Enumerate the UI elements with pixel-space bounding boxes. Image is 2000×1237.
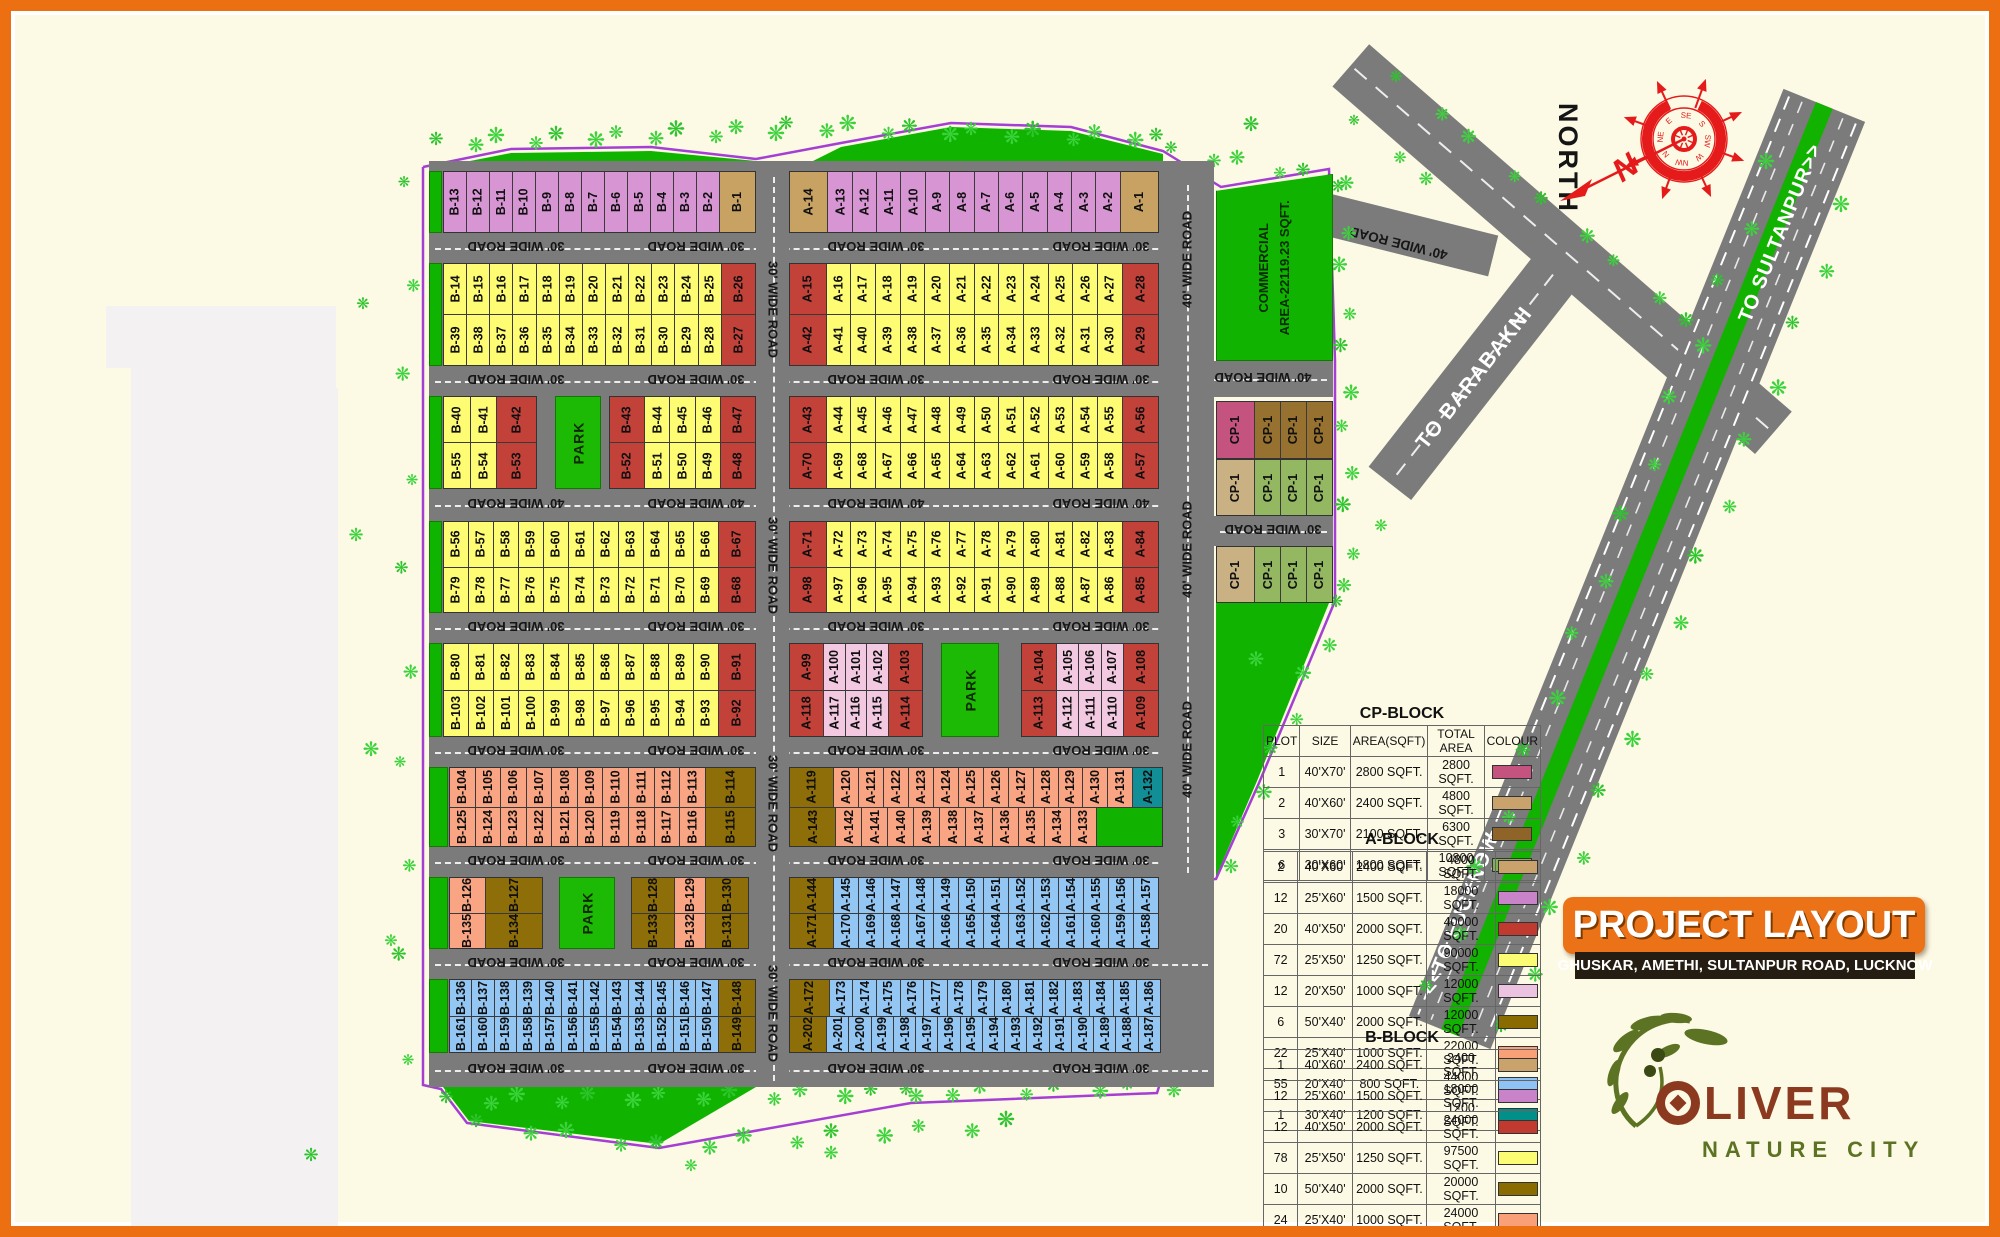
plot-A-127[interactable]: A-127 — [1009, 768, 1034, 807]
plot-B-104[interactable]: B-104 — [450, 768, 476, 807]
plot-A-7[interactable]: A-7 — [975, 172, 999, 232]
plot-A-168[interactable]: A-168 — [884, 914, 909, 949]
plot-CP-1[interactable]: CP-1 — [1281, 460, 1307, 515]
plot-A-37[interactable]: A-37 — [925, 315, 950, 365]
plot-CP-1[interactable]: CP-1 — [1307, 460, 1332, 515]
plot-B-2[interactable]: B-2 — [697, 172, 720, 232]
plot-A-109[interactable]: A-109 — [1124, 691, 1158, 737]
plot-A-72[interactable]: A-72 — [827, 522, 852, 567]
plot-A-120[interactable]: A-120 — [834, 768, 859, 807]
plot-A-181[interactable]: A-181 — [1019, 980, 1043, 1016]
plot-A-122[interactable]: A-122 — [884, 768, 909, 807]
plot-A-15[interactable]: A-15 — [790, 264, 827, 314]
plot-B-138[interactable]: B-138 — [495, 980, 517, 1016]
plot-B-159[interactable]: B-159 — [495, 1017, 517, 1053]
plot-B-7[interactable]: B-7 — [582, 172, 605, 232]
plot-A-76[interactable]: A-76 — [925, 522, 950, 567]
plot-B-70[interactable]: B-70 — [669, 568, 694, 613]
plot-B-77[interactable]: B-77 — [494, 568, 519, 613]
plot-B-41[interactable]: B-41 — [471, 397, 498, 442]
plot-A-62[interactable]: A-62 — [999, 443, 1024, 488]
plot-A-146[interactable]: A-146 — [859, 878, 884, 913]
plot-A-142[interactable]: A-142 — [836, 808, 862, 847]
plot-A-124[interactable]: A-124 — [934, 768, 959, 807]
plot-A-152[interactable]: A-152 — [1009, 878, 1034, 913]
plot-B-63[interactable]: B-63 — [619, 522, 644, 567]
plot-B-50[interactable]: B-50 — [670, 443, 695, 488]
plot-A-161[interactable]: A-161 — [1059, 914, 1084, 949]
plot-B-57[interactable]: B-57 — [469, 522, 494, 567]
plot-B-18[interactable]: B-18 — [537, 264, 560, 314]
plot-B-118[interactable]: B-118 — [629, 808, 655, 847]
plot-B-56[interactable]: B-56 — [444, 522, 469, 567]
plot-B-112[interactable]: B-112 — [655, 768, 681, 807]
plot-A-36[interactable]: A-36 — [950, 315, 975, 365]
plot-B-119[interactable]: B-119 — [603, 808, 629, 847]
plot-A-164[interactable]: A-164 — [984, 914, 1009, 949]
plot-A-106[interactable]: A-106 — [1079, 644, 1101, 690]
plot-A-187[interactable]: A-187 — [1139, 1017, 1160, 1053]
plot-A-133[interactable]: A-133 — [1071, 808, 1097, 847]
plot-A-101[interactable]: A-101 — [846, 644, 868, 690]
plot-A-23[interactable]: A-23 — [999, 264, 1024, 314]
plot-A-77[interactable]: A-77 — [950, 522, 975, 567]
plot-B-15[interactable]: B-15 — [467, 264, 490, 314]
plot-A-53[interactable]: A-53 — [1049, 397, 1074, 442]
plot-A-89[interactable]: A-89 — [1024, 568, 1049, 613]
plot-A-179[interactable]: A-179 — [972, 980, 996, 1016]
plot-B-157[interactable]: B-157 — [540, 1017, 562, 1053]
plot-A-48[interactable]: A-48 — [925, 397, 950, 442]
plot-A-198[interactable]: A-198 — [894, 1017, 916, 1053]
plot-A-173[interactable]: A-173 — [830, 980, 854, 1016]
plot-B-101[interactable]: B-101 — [494, 691, 519, 737]
plot-A-117[interactable]: A-117 — [824, 691, 846, 737]
plot-A-148[interactable]: A-148 — [909, 878, 934, 913]
plot-A-132[interactable]: A-132 — [1133, 768, 1162, 807]
plot-B-75[interactable]: B-75 — [544, 568, 569, 613]
plot-A-27[interactable]: A-27 — [1098, 264, 1123, 314]
plot-B-46[interactable]: B-46 — [696, 397, 721, 442]
plot-B-158[interactable]: B-158 — [517, 1017, 539, 1053]
plot-B-38[interactable]: B-38 — [467, 315, 490, 365]
plot-A-126[interactable]: A-126 — [984, 768, 1009, 807]
plot-B-121[interactable]: B-121 — [552, 808, 578, 847]
plot-CP-1[interactable]: CP-1 — [1281, 547, 1307, 602]
plot-CP-1[interactable]: CP-1 — [1217, 460, 1255, 515]
plot-A-56[interactable]: A-56 — [1123, 397, 1159, 442]
plot-A-182[interactable]: A-182 — [1043, 980, 1067, 1016]
plot-A-177[interactable]: A-177 — [924, 980, 948, 1016]
plot-CP-1[interactable]: CP-1 — [1281, 402, 1307, 458]
plot-B-29[interactable]: B-29 — [675, 315, 698, 365]
plot-B-67[interactable]: B-67 — [719, 522, 755, 567]
plot-B-120[interactable]: B-120 — [578, 808, 604, 847]
plot-A-64[interactable]: A-64 — [950, 443, 975, 488]
plot-B-66[interactable]: B-66 — [694, 522, 719, 567]
plot-A-202[interactable]: A-202 — [790, 1017, 827, 1053]
plot-A-171[interactable]: A-171 — [790, 914, 834, 949]
plot-B-146[interactable]: B-146 — [674, 980, 696, 1016]
plot-A-169[interactable]: A-169 — [859, 914, 884, 949]
plot-A-60[interactable]: A-60 — [1049, 443, 1074, 488]
plot-A-92[interactable]: A-92 — [950, 568, 975, 613]
plot-B-33[interactable]: B-33 — [583, 315, 606, 365]
plot-B-134[interactable]: B-134 — [486, 914, 542, 949]
plot-A-118[interactable]: A-118 — [790, 691, 824, 737]
plot-B-93[interactable]: B-93 — [694, 691, 719, 737]
plot-A-11[interactable]: A-11 — [877, 172, 901, 232]
plot-B-113[interactable]: B-113 — [680, 768, 706, 807]
plot-A-112[interactable]: A-112 — [1057, 691, 1079, 737]
plot-B-122[interactable]: B-122 — [527, 808, 553, 847]
plot-B-36[interactable]: B-36 — [513, 315, 536, 365]
plot-B-6[interactable]: B-6 — [605, 172, 628, 232]
plot-A-32[interactable]: A-32 — [1049, 315, 1074, 365]
plot-B-142[interactable]: B-142 — [584, 980, 606, 1016]
plot-B-131[interactable]: B-131 — [706, 914, 748, 949]
plot-A-9[interactable]: A-9 — [926, 172, 950, 232]
plot-CP-1[interactable]: CP-1 — [1217, 402, 1255, 458]
plot-B-82[interactable]: B-82 — [494, 644, 519, 690]
plot-A-63[interactable]: A-63 — [975, 443, 1000, 488]
plot-A-87[interactable]: A-87 — [1073, 568, 1098, 613]
plot-A-154[interactable]: A-154 — [1059, 878, 1084, 913]
plot-A-174[interactable]: A-174 — [853, 980, 877, 1016]
plot-A-46[interactable]: A-46 — [876, 397, 901, 442]
plot-B-78[interactable]: B-78 — [469, 568, 494, 613]
plot-A-58[interactable]: A-58 — [1098, 443, 1123, 488]
plot-A-91[interactable]: A-91 — [975, 568, 1000, 613]
plot-A-113[interactable]: A-113 — [1022, 691, 1057, 737]
plot-A-150[interactable]: A-150 — [959, 878, 984, 913]
plot-A-116[interactable]: A-116 — [846, 691, 868, 737]
plot-A-90[interactable]: A-90 — [999, 568, 1024, 613]
plot-A-105[interactable]: A-105 — [1057, 644, 1079, 690]
plot-CP-1[interactable]: CP-1 — [1255, 547, 1281, 602]
plot-B-123[interactable]: B-123 — [501, 808, 527, 847]
plot-A-10[interactable]: A-10 — [901, 172, 925, 232]
plot-A-81[interactable]: A-81 — [1049, 522, 1074, 567]
plot-B-30[interactable]: B-30 — [652, 315, 675, 365]
plot-A-114[interactable]: A-114 — [889, 691, 922, 737]
plot-B-17[interactable]: B-17 — [513, 264, 536, 314]
plot-B-58[interactable]: B-58 — [494, 522, 519, 567]
plot-B-133[interactable]: B-133 — [632, 914, 675, 949]
plot-B-136[interactable]: B-136 — [450, 980, 472, 1016]
plot-A-50[interactable]: A-50 — [975, 397, 1000, 442]
plot-B-161[interactable]: B-161 — [450, 1017, 472, 1053]
plot-A-136[interactable]: A-136 — [993, 808, 1019, 847]
plot-B-83[interactable]: B-83 — [519, 644, 544, 690]
plot-B-14[interactable]: B-14 — [444, 264, 467, 314]
plot-B-125[interactable]: B-125 — [450, 808, 476, 847]
plot-B-102[interactable]: B-102 — [469, 691, 494, 737]
plot-A-98[interactable]: A-98 — [790, 568, 827, 613]
plot-A-26[interactable]: A-26 — [1073, 264, 1098, 314]
plot-A-21[interactable]: A-21 — [950, 264, 975, 314]
plot-A-128[interactable]: A-128 — [1034, 768, 1059, 807]
plot-B-13[interactable]: B-13 — [444, 172, 467, 232]
plot-A-95[interactable]: A-95 — [876, 568, 901, 613]
plot-B-153[interactable]: B-153 — [629, 1017, 651, 1053]
plot-B-81[interactable]: B-81 — [469, 644, 494, 690]
plot-A-151[interactable]: A-151 — [984, 878, 1009, 913]
plot-B-117[interactable]: B-117 — [655, 808, 681, 847]
plot-A-170[interactable]: A-170 — [834, 914, 859, 949]
plot-B-99[interactable]: B-99 — [544, 691, 569, 737]
plot-B-116[interactable]: B-116 — [680, 808, 706, 847]
plot-A-47[interactable]: A-47 — [901, 397, 926, 442]
plot-B-96[interactable]: B-96 — [619, 691, 644, 737]
plot-B-132[interactable]: B-132 — [675, 914, 706, 949]
plot-B-100[interactable]: B-100 — [519, 691, 544, 737]
plot-A-175[interactable]: A-175 — [877, 980, 901, 1016]
plot-CP-1[interactable]: CP-1 — [1217, 547, 1255, 602]
plot-A-196[interactable]: A-196 — [938, 1017, 960, 1053]
plot-B-148[interactable]: B-148 — [719, 980, 755, 1016]
plot-B-135[interactable]: B-135 — [450, 914, 486, 949]
plot-A-94[interactable]: A-94 — [901, 568, 926, 613]
plot-A-145[interactable]: A-145 — [834, 878, 859, 913]
plot-A-79[interactable]: A-79 — [999, 522, 1024, 567]
plot-B-27[interactable]: B-27 — [722, 315, 755, 365]
plot-A-28[interactable]: A-28 — [1123, 264, 1159, 314]
plot-B-76[interactable]: B-76 — [519, 568, 544, 613]
plot-B-5[interactable]: B-5 — [628, 172, 651, 232]
plot-A-138[interactable]: A-138 — [940, 808, 966, 847]
plot-CP-1[interactable]: CP-1 — [1255, 460, 1281, 515]
plot-B-110[interactable]: B-110 — [603, 768, 629, 807]
plot-B-85[interactable]: B-85 — [569, 644, 594, 690]
plot-A-31[interactable]: A-31 — [1073, 315, 1098, 365]
plot-A-197[interactable]: A-197 — [916, 1017, 938, 1053]
plot-B-106[interactable]: B-106 — [501, 768, 527, 807]
plot-A-49[interactable]: A-49 — [950, 397, 975, 442]
plot-A-29[interactable]: A-29 — [1123, 315, 1159, 365]
plot-A-143[interactable]: A-143 — [790, 808, 836, 847]
plot-B-24[interactable]: B-24 — [675, 264, 698, 314]
plot-A-97[interactable]: A-97 — [827, 568, 852, 613]
plot-B-65[interactable]: B-65 — [669, 522, 694, 567]
plot-A-84[interactable]: A-84 — [1123, 522, 1159, 567]
plot-A-125[interactable]: A-125 — [959, 768, 984, 807]
plot-B-137[interactable]: B-137 — [472, 980, 494, 1016]
plot-B-129[interactable]: B-129 — [675, 878, 706, 913]
plot-B-9[interactable]: B-9 — [536, 172, 559, 232]
plot-B-147[interactable]: B-147 — [696, 980, 718, 1016]
plot-A-158[interactable]: A-158 — [1134, 914, 1158, 949]
plot-A-140[interactable]: A-140 — [888, 808, 914, 847]
plot-B-26[interactable]: B-26 — [722, 264, 755, 314]
plot-A-144[interactable]: A-144 — [790, 878, 834, 913]
plot-A-44[interactable]: A-44 — [827, 397, 852, 442]
plot-A-30[interactable]: A-30 — [1098, 315, 1123, 365]
plot-A-131[interactable]: A-131 — [1108, 768, 1133, 807]
plot-A-19[interactable]: A-19 — [901, 264, 926, 314]
plot-B-92[interactable]: B-92 — [719, 691, 755, 737]
plot-B-103[interactable]: B-103 — [444, 691, 469, 737]
plot-B-139[interactable]: B-139 — [517, 980, 539, 1016]
plot-B-151[interactable]: B-151 — [674, 1017, 696, 1053]
plot-A-163[interactable]: A-163 — [1009, 914, 1034, 949]
plot-A-192[interactable]: A-192 — [1027, 1017, 1049, 1053]
plot-B-95[interactable]: B-95 — [644, 691, 669, 737]
plot-A-135[interactable]: A-135 — [1019, 808, 1045, 847]
plot-A-194[interactable]: A-194 — [983, 1017, 1005, 1053]
plot-B-28[interactable]: B-28 — [699, 315, 722, 365]
plot-B-89[interactable]: B-89 — [669, 644, 694, 690]
plot-B-143[interactable]: B-143 — [607, 980, 629, 1016]
plot-A-1[interactable]: A-1 — [1121, 172, 1158, 232]
plot-A-73[interactable]: A-73 — [851, 522, 876, 567]
plot-B-40[interactable]: B-40 — [444, 397, 471, 442]
plot-B-39[interactable]: B-39 — [444, 315, 467, 365]
plot-A-176[interactable]: A-176 — [901, 980, 925, 1016]
plot-A-166[interactable]: A-166 — [934, 914, 959, 949]
plot-A-75[interactable]: A-75 — [901, 522, 926, 567]
plot-B-16[interactable]: B-16 — [490, 264, 513, 314]
plot-B-87[interactable]: B-87 — [619, 644, 644, 690]
plot-B-154[interactable]: B-154 — [607, 1017, 629, 1053]
plot-B-74[interactable]: B-74 — [569, 568, 594, 613]
plot-A-43[interactable]: A-43 — [790, 397, 827, 442]
plot-B-8[interactable]: B-8 — [559, 172, 582, 232]
plot-A-96[interactable]: A-96 — [851, 568, 876, 613]
plot-A-20[interactable]: A-20 — [925, 264, 950, 314]
plot-A-201[interactable]: A-201 — [827, 1017, 849, 1053]
plot-B-84[interactable]: B-84 — [544, 644, 569, 690]
plot-B-60[interactable]: B-60 — [544, 522, 569, 567]
plot-B-20[interactable]: B-20 — [583, 264, 606, 314]
plot-A-180[interactable]: A-180 — [995, 980, 1019, 1016]
plot-A-39[interactable]: A-39 — [876, 315, 901, 365]
plot-A-178[interactable]: A-178 — [948, 980, 972, 1016]
plot-A-137[interactable]: A-137 — [966, 808, 992, 847]
commercial-area[interactable]: COMMERCIALAREA-22119.23 SQFT. — [1216, 174, 1333, 361]
plot-A-100[interactable]: A-100 — [824, 644, 846, 690]
plot-B-97[interactable]: B-97 — [594, 691, 619, 737]
plot-B-115[interactable]: B-115 — [706, 808, 755, 847]
plot-CP-1[interactable]: CP-1 — [1307, 547, 1332, 602]
plot-A-71[interactable]: A-71 — [790, 522, 827, 567]
plot-A-17[interactable]: A-17 — [851, 264, 876, 314]
plot-A-34[interactable]: A-34 — [999, 315, 1024, 365]
plot-A-13[interactable]: A-13 — [828, 172, 852, 232]
plot-B-55[interactable]: B-55 — [444, 443, 471, 488]
plot-A-88[interactable]: A-88 — [1049, 568, 1074, 613]
plot-A-45[interactable]: A-45 — [851, 397, 876, 442]
plot-B-68[interactable]: B-68 — [719, 568, 755, 613]
plot-B-150[interactable]: B-150 — [696, 1017, 718, 1053]
plot-CP-1[interactable]: CP-1 — [1255, 402, 1281, 458]
plot-B-111[interactable]: B-111 — [629, 768, 655, 807]
plot-B-140[interactable]: B-140 — [540, 980, 562, 1016]
plot-B-109[interactable]: B-109 — [578, 768, 604, 807]
plot-A-167[interactable]: A-167 — [909, 914, 934, 949]
plot-A-42[interactable]: A-42 — [790, 315, 827, 365]
plot-B-45[interactable]: B-45 — [670, 397, 695, 442]
plot-A-4[interactable]: A-4 — [1048, 172, 1072, 232]
plot-A-33[interactable]: A-33 — [1024, 315, 1049, 365]
plot-A-157[interactable]: A-157 — [1134, 878, 1158, 913]
plot-A-111[interactable]: A-111 — [1079, 691, 1101, 737]
plot-B-43[interactable]: B-43 — [610, 397, 645, 442]
plot-A-54[interactable]: A-54 — [1073, 397, 1098, 442]
plot-A-156[interactable]: A-156 — [1109, 878, 1134, 913]
plot-A-12[interactable]: A-12 — [853, 172, 877, 232]
plot-A-199[interactable]: A-199 — [872, 1017, 894, 1053]
plot-B-69[interactable]: B-69 — [694, 568, 719, 613]
plot-A-24[interactable]: A-24 — [1024, 264, 1049, 314]
plot-B-12[interactable]: B-12 — [467, 172, 490, 232]
plot-B-108[interactable]: B-108 — [552, 768, 578, 807]
plot-A-200[interactable]: A-200 — [849, 1017, 871, 1053]
plot-B-160[interactable]: B-160 — [472, 1017, 494, 1053]
plot-A-74[interactable]: A-74 — [876, 522, 901, 567]
plot-A-108[interactable]: A-108 — [1124, 644, 1158, 690]
plot-A-18[interactable]: A-18 — [876, 264, 901, 314]
plot-A-190[interactable]: A-190 — [1072, 1017, 1094, 1053]
plot-A-104[interactable]: A-104 — [1022, 644, 1057, 690]
plot-CP-1[interactable]: CP-1 — [1307, 402, 1332, 458]
plot-A-41[interactable]: A-41 — [827, 315, 852, 365]
plot-A-78[interactable]: A-78 — [975, 522, 1000, 567]
plot-B-35[interactable]: B-35 — [537, 315, 560, 365]
plot-A-67[interactable]: A-67 — [876, 443, 901, 488]
plot-A-22[interactable]: A-22 — [975, 264, 1000, 314]
plot-B-34[interactable]: B-34 — [560, 315, 583, 365]
plot-B-73[interactable]: B-73 — [594, 568, 619, 613]
plot-A-185[interactable]: A-185 — [1114, 980, 1138, 1016]
plot-A-195[interactable]: A-195 — [961, 1017, 983, 1053]
plot-B-80[interactable]: B-80 — [444, 644, 469, 690]
plot-A-162[interactable]: A-162 — [1034, 914, 1059, 949]
plot-A-3[interactable]: A-3 — [1072, 172, 1096, 232]
plot-A-57[interactable]: A-57 — [1123, 443, 1159, 488]
plot-A-103[interactable]: A-103 — [889, 644, 922, 690]
plot-A-193[interactable]: A-193 — [1005, 1017, 1027, 1053]
plot-A-51[interactable]: A-51 — [999, 397, 1024, 442]
plot-B-48[interactable]: B-48 — [721, 443, 755, 488]
plot-B-53[interactable]: B-53 — [497, 443, 536, 488]
plot-A-160[interactable]: A-160 — [1084, 914, 1109, 949]
plot-A-183[interactable]: A-183 — [1066, 980, 1090, 1016]
plot-A-172[interactable]: A-172 — [790, 980, 830, 1016]
plot-A-119[interactable]: A-119 — [790, 768, 834, 807]
plot-B-152[interactable]: B-152 — [652, 1017, 674, 1053]
plot-B-3[interactable]: B-3 — [674, 172, 697, 232]
plot-A-68[interactable]: A-68 — [851, 443, 876, 488]
plot-B-37[interactable]: B-37 — [490, 315, 513, 365]
plot-B-155[interactable]: B-155 — [584, 1017, 606, 1053]
plot-B-21[interactable]: B-21 — [606, 264, 629, 314]
plot-A-134[interactable]: A-134 — [1045, 808, 1071, 847]
plot-B-72[interactable]: B-72 — [619, 568, 644, 613]
plot-A-59[interactable]: A-59 — [1073, 443, 1098, 488]
plot-A-130[interactable]: A-130 — [1083, 768, 1108, 807]
plot-A-14[interactable]: A-14 — [790, 172, 828, 232]
plot-A-61[interactable]: A-61 — [1024, 443, 1049, 488]
plot-A-8[interactable]: A-8 — [950, 172, 974, 232]
plot-B-114[interactable]: B-114 — [706, 768, 755, 807]
plot-B-71[interactable]: B-71 — [644, 568, 669, 613]
plot-A-99[interactable]: A-99 — [790, 644, 824, 690]
plot-B-10[interactable]: B-10 — [513, 172, 536, 232]
plot-A-184[interactable]: A-184 — [1090, 980, 1114, 1016]
plot-B-90[interactable]: B-90 — [694, 644, 719, 690]
plot-A-110[interactable]: A-110 — [1102, 691, 1124, 737]
